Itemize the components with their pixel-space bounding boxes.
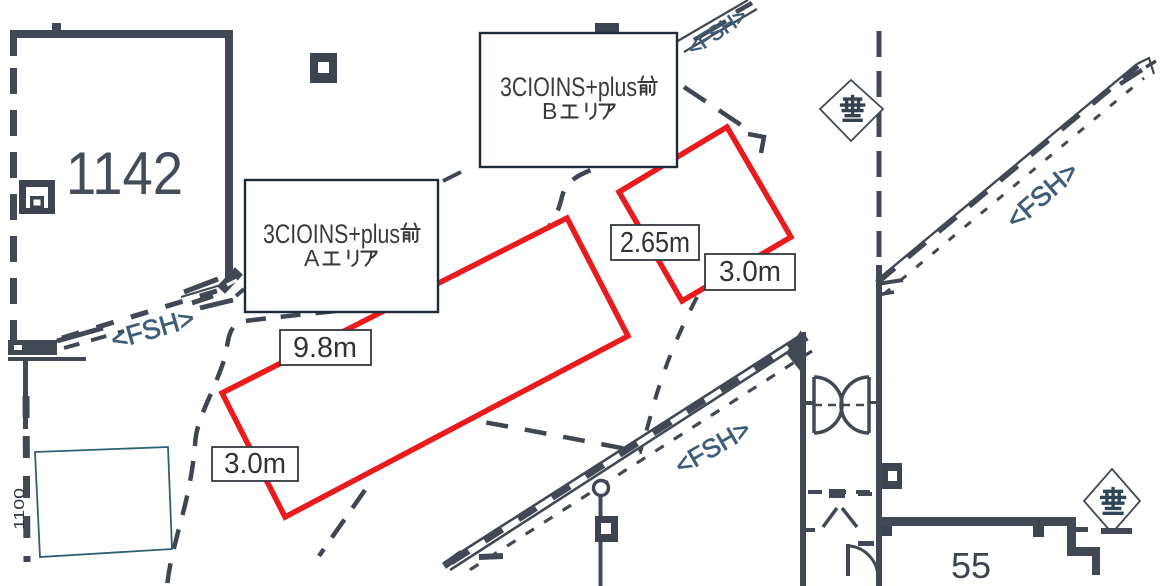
svg-text:9.8m: 9.8m	[293, 332, 357, 364]
svg-text:3CIOINS+plus: 3CIOINS+plus	[263, 219, 400, 249]
svg-text:55: 55	[951, 545, 991, 586]
svg-text:1100: 1100	[11, 488, 28, 530]
svg-text:3.0m: 3.0m	[224, 448, 286, 480]
svg-text:B: B	[542, 98, 557, 124]
svg-text:A: A	[304, 245, 320, 271]
svg-text:1142: 1142	[66, 140, 183, 207]
svg-text:3CIOINS+plus: 3CIOINS+plus	[500, 72, 637, 102]
svg-text:3.0m: 3.0m	[719, 256, 781, 288]
svg-text:2.65m: 2.65m	[620, 227, 690, 259]
